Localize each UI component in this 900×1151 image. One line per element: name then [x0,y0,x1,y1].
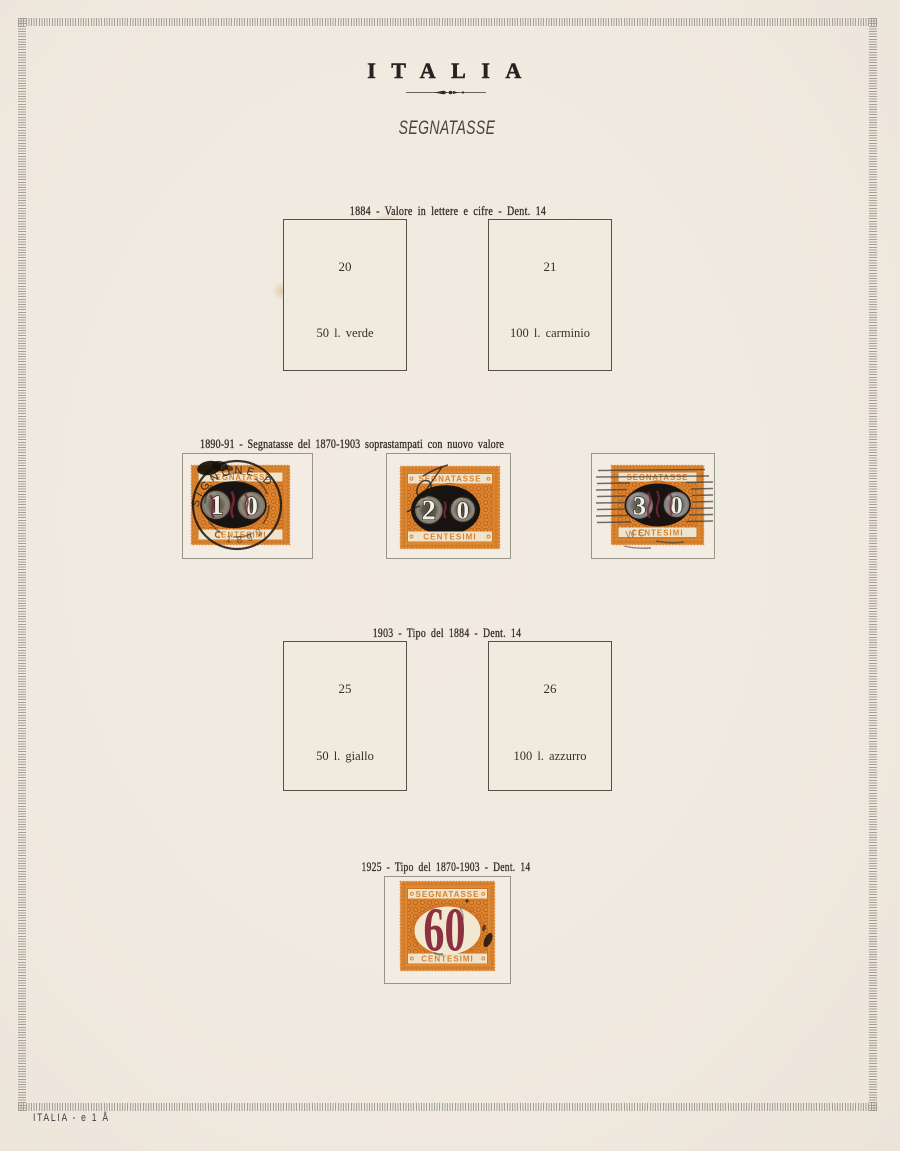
svg-text:0: 0 [670,492,683,519]
svg-text:3: 3 [633,491,646,520]
svg-text:SEGNATASSE: SEGNATASSE [419,475,482,484]
svg-text:2: 2 [422,496,436,527]
svg-text:0: 0 [457,497,470,524]
svg-text:CENTESIMI: CENTESIMI [423,533,476,542]
svg-text:WC: WC [625,528,649,541]
svg-text:CENTESIMI: CENTESIMI [421,955,474,964]
